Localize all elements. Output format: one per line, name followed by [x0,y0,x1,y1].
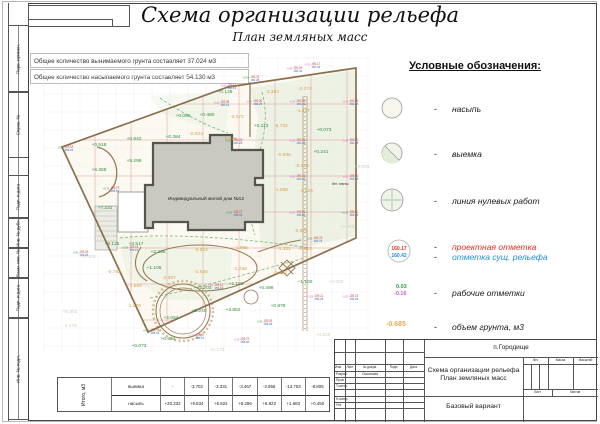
tb-row-utv: Утв. [336,403,342,407]
svg-text:159.86: 159.86 [296,213,305,217]
tb-masshtab: Масштаб [573,358,598,362]
volume-label: -0.685 [277,152,291,158]
totals-cell: -3.702 [184,378,208,395]
legend-label-work-marks: рабочие отметки [452,288,594,298]
totals-cell: +20.232 [160,395,184,412]
legend-label-cut: выемка [452,149,594,159]
svg-text:160.44: 160.44 [293,69,302,73]
totals-cell: +1.683 [281,395,305,412]
svg-text:160.23: 160.23 [233,141,242,145]
legend-dash: - [434,288,446,298]
svg-text:159.76: 159.76 [313,239,322,243]
house-label: Индивидуальный жилой дом №12 [168,195,244,202]
volume-label: +6.125 [105,241,120,247]
margin-cell: Инв. № подл. [8,318,28,420]
volume-label: +0.002 [329,279,344,285]
svg-text:160.26: 160.26 [296,177,305,181]
tb-location: п.Городище [424,344,598,351]
legend-work-mark-negative: -0.16 [394,291,407,297]
volume-label: +5.298 [127,158,142,164]
elevation-node: 160.33160.25+0.08 [243,74,260,82]
elevation-node: 159.21159.26-0.05 [307,293,323,301]
margin-label: Инв. № подл. [16,355,21,383]
legend-dash: - [434,322,446,332]
elevation-node: 159.53159.530.00 [58,144,73,152]
divider [335,396,424,397]
totals-cell: +8.286 [232,395,256,412]
svg-text:+0.07: +0.07 [143,329,150,333]
svg-text:159.62: 159.62 [110,189,119,193]
volume-label: -5.732 [274,123,288,129]
divider [28,19,112,20]
legend-dash: - [434,104,446,114]
svg-text:160.42: 160.42 [391,253,407,259]
svg-text:160.34: 160.34 [349,102,358,106]
divider [335,383,424,384]
volume-label: -0.003 [189,131,203,137]
elevation-node: 159.23159.26-0.03 [342,293,358,301]
margin-cell: Инв. № дубл. [8,218,28,248]
svg-text:-0.03: -0.03 [342,295,348,299]
tb-lit: Лит. [523,358,548,362]
svg-text:158.34: 158.34 [150,331,159,335]
elevation-node: 158.41158.34+0.07 [143,327,160,335]
volume-label: +0.005 [340,224,355,230]
divider [424,396,598,397]
house-footprint [145,135,263,230]
tb-designer-name: Осколкова [355,372,385,376]
svg-text:+0.11: +0.11 [103,187,110,191]
svg-text:160.42: 160.42 [311,65,320,69]
totals-cell: -3.966 [257,378,281,395]
legend-dash: - [434,252,446,262]
volume-label: -1.684 [128,283,142,289]
volume-label: -2.630 [194,269,208,275]
legend-dash: - [434,149,446,159]
totals-cell: +6.823 [257,395,281,412]
tb-row-tkontr: Т.контр. [336,384,348,388]
svg-text:-0.40: -0.40 [286,67,292,71]
margin-label: Взам. инв. № [16,249,21,277]
tb-doc-title-2: План земляных масс [424,375,523,382]
svg-text:160.13: 160.13 [220,103,229,107]
tb-variant: Базовый вариант [424,403,523,410]
page-title: Схема организации рельефа [120,3,480,27]
volume-label: -1.276 [127,303,141,309]
volume-label: +0.878 [271,303,286,309]
volume-label: -1.088 [274,187,288,193]
totals-row-header: Итого, м3 [58,378,111,411]
totals-cell: -8.805 [305,378,329,395]
volume-label: +0.113 [254,123,269,129]
tb-row-prov: Пров. [336,378,344,382]
volume-label: +7.231 [98,205,113,211]
top-stamp-box [28,5,130,27]
margin-label: Инв. № дубл. [16,219,21,247]
margin-cell: Перв. примен. [8,25,28,92]
totals-cell: +9.834 [184,395,208,412]
totals-cell: -13.753 [281,378,305,395]
margin-cell: Подп. и дата [8,175,28,218]
title-block: Изм Лист № докум. Подп. Дата Разраб. Оск… [334,339,597,421]
tb-col-docnum: № докум. [355,365,385,369]
elevation-node: 158.76158.90-0.14 [233,336,249,344]
margin-label: Перв. примен. [16,44,21,74]
volume-label: +0.073 [132,343,147,349]
svg-text:-0.05: -0.05 [246,100,252,104]
svg-text:-0.15: -0.15 [213,101,219,105]
legend-dash: - [434,196,446,206]
volume-label: -1.337 [296,108,310,114]
divider [335,408,424,409]
tb-col-list: Лист [345,365,355,369]
svg-text:160.25: 160.25 [250,78,259,82]
cut-symbol-icon [382,143,402,164]
svg-text:+0.08: +0.08 [243,76,250,80]
svg-text:+0.06: +0.06 [122,246,129,250]
margin-cell: Подп. и дата [8,278,28,318]
volume-label: +0.499 [259,285,274,291]
svg-text:0.00: 0.00 [307,237,313,241]
tb-doc-title-1: Схема организации рельефа [424,367,523,374]
divider [539,364,540,389]
volume-label: -1.434 [273,270,287,276]
legend-label-volume: объем грунта, м3 [452,322,594,332]
totals-label-cut: выемка [111,378,160,395]
svg-text:0.00: 0.00 [73,251,79,255]
elevation-node: 160.17160.42-0.25 [304,61,320,69]
volume-label: -0.782 [107,269,121,275]
site-plan: Индивидуальный жилой дом №12 бет. плиты … [30,50,376,372]
volume-label: +0.273 [210,347,225,353]
zero-work-symbol-icon [381,189,403,211]
totals-table: Итого, м3 выемка - -3.702 -3.331 -3.467 … [57,377,330,412]
divider [335,352,424,353]
divider [523,364,598,365]
totals-cell: +6.822 [208,395,232,412]
tb-col-data: Дата [403,365,424,369]
volume-label: -1.246 [233,266,247,272]
tb-list: Лист [523,390,552,394]
volume-label: -0.334 [295,163,309,169]
svg-text:-0.02: -0.02 [220,84,226,88]
svg-text:159.69: 159.69 [233,213,242,217]
page-subtitle: План земляных масс [120,30,480,44]
legend-title: Условные обозначения: [385,60,565,72]
tb-massa: Масса [548,358,573,362]
tb-col-izm: Изм [335,365,345,369]
volume-label: -2.507 [162,275,176,281]
divider [531,364,532,389]
volume-label: -1.956 [234,245,248,251]
elevation-node: 158.47158.51-0.04 [188,332,204,340]
volume-label: -3.274 [298,86,312,92]
svg-text:-0.02: -0.02 [289,139,295,143]
volume-label: -1.225 [299,188,313,194]
tb-row-nkontr: Н.контр. [336,397,348,401]
margin-label: Подп. и дата [16,183,21,210]
legend-label-fill: насыпь [452,104,594,114]
svg-text:-0.04: -0.04 [188,334,194,338]
totals-cell: -3.331 [208,378,232,395]
margin-label: Подп. и дата [16,285,21,312]
divider [335,377,424,378]
svg-text:160.25: 160.25 [253,102,262,106]
margin-label: Справ. № [16,115,21,135]
svg-text:-0.25: -0.25 [304,63,310,67]
svg-text:-0.05: -0.05 [207,284,213,288]
svg-text:158.90: 158.90 [240,340,249,344]
margin-cell: Справ. № [8,92,28,158]
legend-label-zero-work: линия нулевых работ [452,196,594,206]
svg-text:+0.03: +0.03 [226,211,233,215]
volume-label: -0.822 [194,247,208,253]
volume-label: +2.064 [164,315,179,321]
svg-text:159.16: 159.16 [214,286,223,290]
totals-cell: +0.450 [305,395,329,412]
svg-text:159.26: 159.26 [349,297,358,301]
volume-label: +0.384 [166,134,181,140]
svg-text:-0.14: -0.14 [233,338,239,342]
svg-text:-0.05: -0.05 [307,295,313,299]
volume-label: +0.634 [161,336,176,342]
volume-label: +0.480 [200,112,215,118]
margin-cell: Взам. инв. № [8,248,28,278]
elevation-symbol-icon: 160.17 160.42 [388,240,410,262]
legend-volume-sample: -0.685 [386,321,406,328]
volume-label: -0.875 [294,228,308,234]
legend-symbols: 160.17 160.42 [374,94,426,344]
svg-text:159.26: 159.26 [314,297,323,301]
volume-label: +0.942 [127,136,142,142]
divider [112,19,113,27]
volume-label: +3.852 [226,307,241,313]
volume-label: +0.518 [92,142,107,148]
tb-col-podp: Подп. [385,365,403,369]
totals-cell: - [160,378,184,395]
divider [335,389,424,390]
legend-label-project-mark: проектная отметка [452,242,594,252]
volume-label: -3.363 [265,89,279,95]
svg-text:159.96: 159.96 [349,177,358,181]
legend-label-existing-mark: отметка сущ. рельефа [452,252,594,262]
svg-text:159.76: 159.76 [349,213,358,217]
svg-text:-0.03: -0.03 [342,139,348,143]
volume-label: +0.066 [176,113,191,119]
svg-text:-0.14: -0.14 [289,100,295,104]
volume-label: +2.181 [229,281,244,287]
elevation-node: 160.04160.44-0.40 [286,65,302,73]
volume-label: +0.003 [355,164,370,170]
volume-label: +5.240 [192,308,207,314]
elevation-node: 159.06159.060.00 [257,318,272,326]
tb-listov: Листов [552,390,598,394]
svg-text:-0.04: -0.04 [289,211,295,215]
svg-text:160.34: 160.34 [296,102,305,106]
svg-text:160.28: 160.28 [349,141,358,145]
volume-label: +6.368 [92,167,107,173]
volume-label: -1.121 [277,246,291,252]
volume-label: +2.235 [151,249,166,255]
totals-label-fill: насыпь [111,395,160,412]
volume-label: +0.241 [314,149,329,155]
svg-text:160.17: 160.17 [391,246,407,252]
svg-text:159.10: 159.10 [129,248,138,252]
drawing-sheet: Перв. примен. Справ. № Подп. и дата Инв.… [0,0,600,424]
volume-label: -3.176 [63,323,77,329]
svg-text:-0.15: -0.15 [342,100,348,104]
legend-dash: - [434,242,446,252]
svg-text:-0.01: -0.01 [342,175,348,179]
volume-label: -0.472 [230,114,244,120]
svg-text:-0.08: -0.08 [289,175,295,179]
totals-cell: -3.467 [232,378,256,395]
volume-label: +0.303 [63,309,78,315]
divider [335,402,424,403]
svg-text:0.00: 0.00 [58,146,64,150]
concrete-slabs-note: бет. плиты [332,182,349,186]
tb-row-razrab: Разраб. [336,372,347,376]
svg-text:159.35: 159.35 [79,253,88,257]
volume-label: +1.106 [147,265,162,271]
volume-label: -0.613 [298,246,312,252]
volume-label: +1.100 [298,279,313,285]
svg-text:159.06: 159.06 [263,322,272,326]
svg-text:+0.05: +0.05 [342,211,349,215]
volume-label: +0.529 [316,332,331,338]
svg-text:160.19: 160.19 [227,86,236,90]
volume-label: +0.073 [317,127,332,133]
legend-work-mark-positive: 0.03 [396,284,407,290]
svg-text:160.28: 160.28 [296,141,305,145]
svg-text:158.51: 158.51 [195,336,204,340]
svg-text:159.53: 159.53 [64,148,73,152]
fill-symbol-icon [382,98,402,118]
svg-text:+0.03: +0.03 [226,139,233,143]
svg-text:0.00: 0.00 [257,320,263,324]
